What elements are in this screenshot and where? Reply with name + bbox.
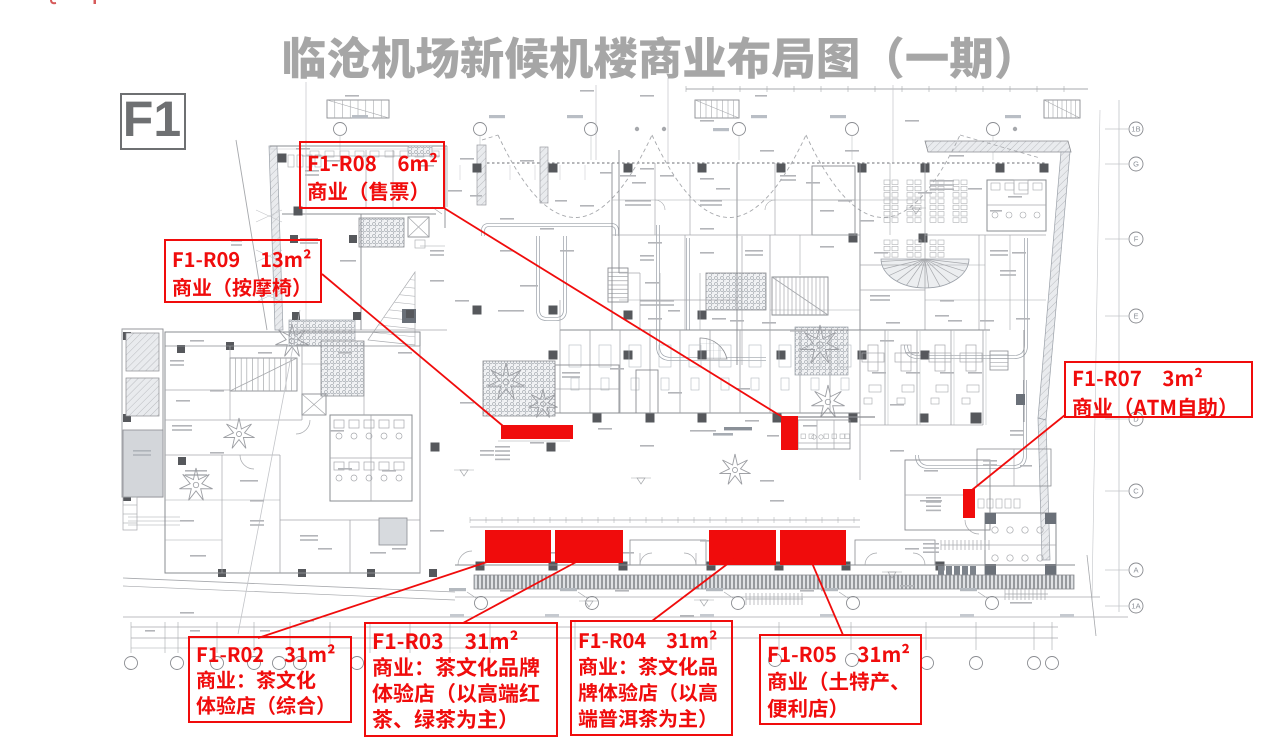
svg-text:D: D xyxy=(1133,415,1139,424)
svg-text:C: C xyxy=(1133,487,1139,496)
svg-text:F: F xyxy=(1134,235,1139,244)
svg-text:1A: 1A xyxy=(1131,602,1140,611)
svg-text:1B: 1B xyxy=(1131,125,1140,134)
svg-text:E: E xyxy=(1133,312,1138,321)
svg-text:A: A xyxy=(1133,566,1138,575)
svg-text:G: G xyxy=(1133,160,1139,169)
